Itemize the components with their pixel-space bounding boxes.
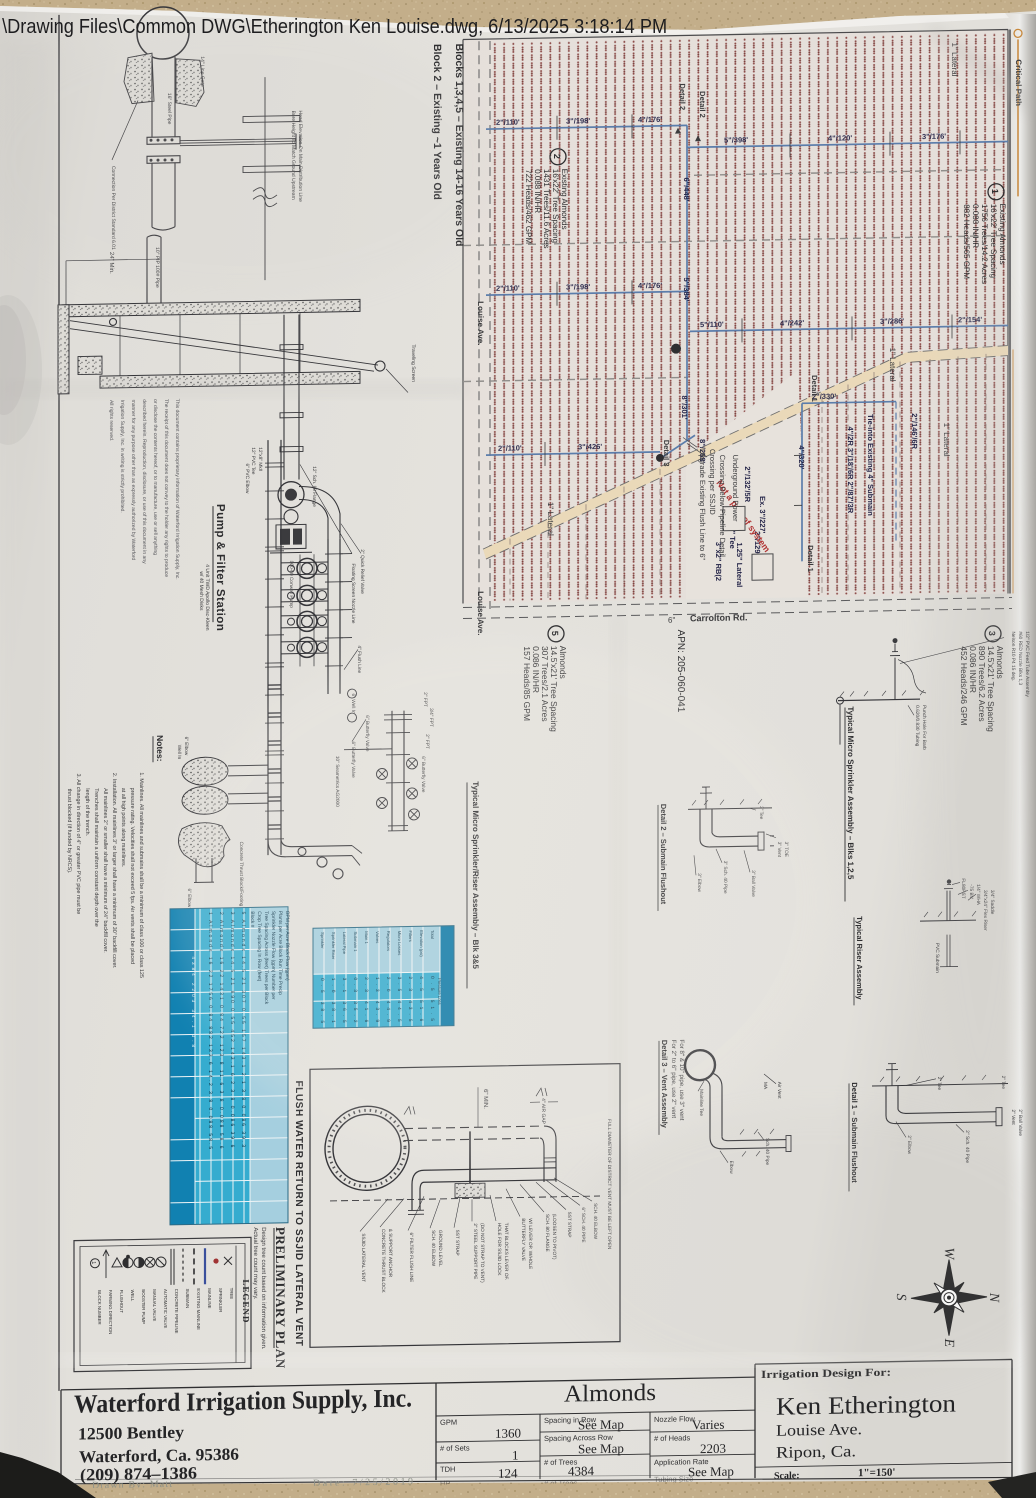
svg-text:FARMING DIRECTION: FARMING DIRECTION [108,1290,113,1334]
svg-text:See Map: See Map [578,1441,624,1457]
svg-text:0.088 IN/HR: 0.088 IN/HR [533,169,542,213]
svg-text:Blocks 1,3,4,5 – Existing 14: Blocks 1,3,4,5 – Existing 14-16 Years Ol… [453,43,465,246]
svg-text:4"/176': 4"/176' [638,281,662,290]
svg-text:WELL: WELL [130,1290,135,1302]
svg-text:12500 Bentley: 12500 Bentley [78,1423,185,1444]
svg-text:4"/2R 3"/18'/6R 2"/87'/3R: 4"/2R 3"/18'/6R 2"/87'/3R [846,426,855,514]
svg-text:Ken Etherington: Ken Etherington [776,1390,957,1420]
svg-text:3"/176': 3"/176' [922,132,946,141]
svg-text:2" FPT: 2" FPT [424,734,430,749]
svg-text:Detail 3 – Vent Assembly: Detail 3 – Vent Assembly [660,1040,669,1129]
svg-text:2" Ball Valve: 2" Ball Valve [1017,1109,1023,1136]
svg-text:S: S [893,1293,908,1300]
svg-text:1756 Trees/14.2 Acres: 1756 Trees/14.2 Acres [980,204,989,284]
svg-text:3.5 44.5: 3.5 44.5 [397,977,402,1026]
svg-text:3. All change in directio: 3. All change in direction of 4" or grea… [75,774,81,915]
svg-text:Waterford Irrigation Supply,: Waterford Irrigation Supply, Inc. [74,1383,412,1418]
svg-text:Air Vent: Air Vent [776,1082,782,1100]
svg-text:Elevation (psi): Elevation (psi) [419,930,424,957]
svg-text:APN: 205-060-041: APN: 205-060-041 [675,629,686,712]
svg-text:2"/110': 2"/110' [496,283,520,292]
svg-text:SCH. 40 ELBOW: SCH. 40 ELBOW [431,1230,436,1267]
svg-text:3" Tee: 3" Tee [758,806,764,820]
svg-text:Filters: Filters [408,930,413,941]
svg-text:3/4" FPT: 3/4" FPT [428,708,434,727]
svg-text:1360: 1360 [495,1425,521,1440]
svg-text:Submain 1: Submain 1 [353,931,358,952]
svg-text:FL80PST: FL80PST [960,878,966,898]
svg-text:Concrete Thrust Block/Footing: Concrete Thrust Block/Footing [238,842,244,907]
svg-text:2"/110': 2"/110' [496,117,520,126]
svg-text:1.25" Lateral: 1.25" Lateral [735,542,744,587]
svg-text:2"/132'/5R: 2"/132'/5R [743,466,752,503]
svg-text:Regulators: Regulators [386,931,391,951]
svg-text:pressure rating. Velocities: pressure rating. Velocities shall not ex… [129,788,135,965]
svg-text:2" Vent: 2" Vent [1010,1109,1016,1125]
svg-text:1" Lateral: 1" Lateral [888,348,897,382]
svg-text:For 8" & 10" pipe, use 3" vent: For 8" & 10" pipe, use 3" vent [678,1039,685,1120]
svg-text:& SUPPORT ANCHOR: & SUPPORT ANCHOR [388,1229,393,1278]
svg-text:Sprinkler Nozzle Flow (gpm): Sprinkler Nozzle Flow (gpm) Number per [270,911,276,1000]
svg-text:2: 2 [552,154,562,159]
svg-text:16'x22' Tree Spacing: 16'x22' Tree Spacing [989,204,998,278]
svg-text:6" FILTER FLUSH LINE: 6" FILTER FLUSH LINE [409,1232,414,1282]
svg-text:Elbow: Elbow [728,1161,734,1175]
svg-text:4"/320': 4"/320' [797,445,806,469]
svg-text:Louise Ave.: Louise Ave. [476,301,485,345]
svg-text:# of Heads: # of Heads [654,1433,691,1443]
svg-text:LEGEND: LEGEND [241,1279,251,1323]
svg-text:(DO NOT STRAP TO VENT): (DO NOT STRAP TO VENT) [480,1223,485,1283]
svg-text:AUTOMATIC VALVE: AUTOMATIC VALVE [163,1289,168,1329]
svg-text:Crossing per SSJID: Crossing per SSJID [708,449,717,516]
svg-text:16" Steel Pipe: 16" Steel Pipe [166,93,172,125]
svg-text:Ripon, Ca.: Ripon, Ca. [776,1443,856,1461]
svg-text:0.5 51.5: 0.5 51.5 [430,976,435,1025]
svg-text:Detail 2: Detail 2 [678,83,687,110]
svg-text:This document contains proprie: This document contains proprietary infor… [174,399,180,580]
svg-text:Head Elevation On Main Distrib: Head Elevation On Main Distribution Line [297,110,303,202]
svg-text:Detail 1: Detail 1 [806,545,815,572]
svg-text:Bore Height To Match Ground Up: Bore Height To Match Ground Upstream [290,111,296,200]
svg-text:1: 1 [512,1447,518,1462]
svg-text:Tree Spacing Across (feet): Tree Spacing Across (feet) Trees per Blo… [263,911,269,1005]
svg-text:Existing Almonds: Existing Almonds [560,169,569,230]
svg-text:1"=150': 1"=150' [858,1467,895,1480]
svg-text:1.0 38.1: 1.0 38.1 [331,978,336,1027]
svg-text:5 Almonds 14.5 21 307: 5 Almonds 14.5 21 307 0.55 157 143.1 2.1… [240,911,246,1149]
svg-text:5: 5 [550,631,560,636]
svg-text:6" Butterfly Valve: 6" Butterfly Valve [350,741,356,778]
svg-text:SST STRAP: SST STRAP [567,1212,572,1238]
svg-text:2" Sch. 40 Pipe: 2" Sch. 40 Pipe [964,1130,970,1163]
svg-text:Typical Micro Sprinkler/Riser: Typical Micro Sprinkler/Riser Assembly –… [471,781,480,969]
svg-text:12"x8" MkII: 12"x8" MkII [257,447,263,471]
svg-text:# of Sets: # of Sets [440,1443,470,1453]
svg-text:4384 2203 34: 4384 2203 34.1 3.8 [191,956,196,1050]
svg-text:or disclose the contents hereo: or disclose the contents hereof, or to m… [152,399,158,555]
svg-text:0.620/0.830 Tubing: 0.620/0.830 Tubing [914,705,920,747]
svg-text:1 Almonds 16 22 1756: 1 Almonds 16 22 1756 0.84 882 133.6 14.2… [207,912,213,1151]
svg-text:w/ 40 Mesh Disks: w/ 40 Mesh Disks [198,571,204,611]
svg-text:4384: 4384 [568,1463,594,1478]
svg-text:3"/198': 3"/198' [566,282,590,291]
svg-text:TREE: TREE [229,1288,234,1300]
svg-text:FLUSHOUT: FLUSHOUT [119,1290,124,1314]
svg-text:4.5 51.6: 4.5 51.6 [419,976,424,1025]
svg-text:3"/426': 3"/426' [578,442,602,451]
svg-text:Irrigation Supply, Inc. in wri: Irrigation Supply, Inc. in writing is st… [119,400,125,513]
svg-text:6"/448': 6"/448' [682,177,691,201]
svg-text:1: 1 [90,1261,96,1264]
svg-text:Punch Hole For Barb: Punch Hole For Barb [921,705,927,750]
svg-text:W/ LEVER OP. W/HOLE: W/ LEVER OP. W/HOLE [528,1218,533,1269]
svg-text:PRELIMINARY PLAN: PRELIMINARY PLAN [273,1227,288,1369]
svg-text:SST STRAP: SST STRAP [455,1230,460,1256]
svg-text:2"/154': 2"/154' [958,315,982,324]
svg-text:5"/384': 5"/384' [682,277,691,301]
svg-text:3/4" Saddle: 3/4" Saddle [989,890,995,915]
svg-text:16'x22' Tree Spacing: 16'x22' Tree Spacing [551,169,560,243]
svg-text:MAINLINE: MAINLINE [207,1288,212,1309]
svg-text:CONCRETE THRUST BLOCK: CONCRETE THRUST BLOCK [381,1229,386,1294]
svg-text:EXISTING MAINLINE: EXISTING MAINLINE [196,1288,201,1330]
svg-text:SCH. 40 ELBOW: SCH. 40 ELBOW [593,1203,598,1240]
svg-text:Typical Micro Sprinkler Assemb: Typical Micro Sprinkler Assembly – Blks … [846,706,855,880]
svg-text:Detail 1 – Submain Flushout: Detail 1 – Submain Flushout [850,1082,859,1183]
svg-text:Mainline Tee: Mainline Tee [698,1089,704,1116]
svg-text:Sprinkler Riser: Sprinkler Riser [331,932,336,960]
svg-text:Notes:: Notes: [155,735,165,762]
svg-text:3"/286': 3"/286' [880,316,904,325]
svg-text:GROUND LEVEL: GROUND LEVEL [438,1230,443,1267]
svg-text:4" AIR GAP: 4" AIR GAP [540,1098,546,1125]
svg-text:Micro Losses: Micro Losses [397,931,402,956]
svg-text:0.088 IN/HR: 0.088 IN/HR [971,204,980,248]
svg-text:Total: Total [430,930,435,939]
svg-text:All mainlines 2" or smalle: All mainlines 2" or smaller shall have a… [102,788,108,953]
svg-text:Design tree count based on inf: Design tree count based on information g… [260,1227,266,1350]
svg-text:Louise Ave.: Louise Ave. [776,1421,862,1440]
svg-text:BUTTERFLY VALVE: BUTTERFLY VALVE [521,1218,526,1261]
svg-text:The receipt of this document d: The receipt of this document does not co… [163,399,169,577]
svg-text:2" Tee: 2" Tee [936,1077,942,1091]
svg-text:3.1 36.5: 3.1 36.5 [342,978,347,1027]
svg-text:Lateral Pipe: Lateral Pipe [342,932,347,955]
svg-text:Well In: Well In [176,745,182,760]
svg-text:124: 124 [498,1466,518,1481]
svg-text:3" Vent: 3" Vent [776,842,782,858]
svg-text:6" MIN.: 6" MIN. [482,1089,488,1109]
svg-text:Block #: Block # [249,911,255,927]
svg-text:10" PIP 100# Pipe: 10" PIP 100# Pipe [154,247,160,288]
svg-text:1431 Trees/11.6 Acres: 1431 Trees/11.6 Acres [542,169,551,249]
svg-text:5"/398': 5"/398' [724,135,748,144]
svg-text:10" Seametrics AG2000: 10" Seametrics AG2000 [334,756,340,807]
svg-text:4"/176': 4"/176' [638,115,662,124]
svg-text:See Map: See Map [688,1464,734,1480]
svg-text:12" PVC Tee: 12" PVC Tee [250,447,256,475]
svg-text:3" Elbow: 3" Elbow [696,873,702,892]
svg-text:W: W [941,1247,956,1260]
svg-text:(LOOSEN TO PIVOT): (LOOSEN TO PIVOT) [552,1214,557,1260]
svg-text:Detail 2: Detail 2 [698,91,707,118]
svg-text:Connection Per District Standa: Connection Per District Standard 6.01 [110,166,116,250]
svg-text:3/4"x24" Flex Riser: 3/4"x24" Flex Riser [982,890,988,931]
svg-text:at all high points along: at all high points along mainlines. [120,788,126,868]
svg-text:1/4" WHA: 1/4" WHA [975,884,981,906]
svg-text:2" Elbow: 2" Elbow [906,1135,912,1154]
svg-text:length of the trench.: length of the trench. [84,788,90,836]
svg-text:GPM per Acre Block Flow (g: GPM per Acre Block Flow (gpm) [284,911,290,981]
svg-text:Varies: Varies [692,1417,724,1433]
svg-text:452 Heads/246 GPM: 452 Heads/246 GPM [959,646,969,726]
svg-text:6" SCH. 40 PIPE: 6" SCH. 40 PIPE [581,1207,586,1242]
svg-text:SCH. 80 FLANGE: SCH. 80 FLANGE [545,1214,550,1252]
svg-text:Pressure Loss: Pressure Loss [437,978,442,1005]
svg-text:N: N [986,1292,1001,1303]
svg-text:THAT BLOCKS LEVER OF.: THAT BLOCKS LEVER OF. [504,1223,509,1280]
svg-text:6" Well In: 6" Well In [350,693,356,714]
svg-text:722 Heads/462 GPM: 722 Heads/462 GPM [524,169,533,244]
svg-text:Trenches shall maintain a: Trenches shall maintain a uniform consta… [93,788,99,927]
svg-text:FLUSH WATER RETURN TO SSJI: FLUSH WATER RETURN TO SSJID LATERAL VENT [293,1080,304,1346]
svg-text:Plants per Acre Block Run Ti: Plants per Acre Block Run Time Precip [277,911,283,995]
svg-text:6" Elbow: 6" Elbow [183,737,189,756]
svg-text:2" Tee: 2" Tee [1000,1076,1006,1090]
svg-text:1" Lateral: 1" Lateral [942,423,951,457]
svg-text:Louise Ave.: Louise Ave. [476,591,485,635]
svg-text:2" FPT: 2" FPT [422,692,428,707]
svg-text:3" TOE: 3" TOE [783,842,789,858]
svg-text:8"/301': 8"/301' [680,395,689,419]
svg-text:SUBMAIN: SUBMAIN [185,1289,190,1309]
svg-text:Nozzle Flow: Nozzle Flow [654,1414,695,1424]
svg-text:Actual tree count may vary.: Actual tree count may vary. [252,1227,258,1300]
svg-text:-75 BV: -75 BV [968,884,974,900]
svg-text:0.5 38.5: 0.5 38.5 [320,978,325,1027]
svg-text:2. Installation. All main: 2. Installation. All mainlines 3" or lar… [111,773,117,969]
svg-text:882 Heads/565 GPM: 882 Heads/565 GPM [962,204,971,279]
svg-text:2203: 2203 [700,1441,726,1456]
svg-text:Typical Riser Assembly: Typical Riser Assembly [855,916,864,1000]
svg-text:Irrigation Design For:: Irrigation Design For: [761,1367,891,1381]
svg-text:1. Mainlines. All mainlin: 1. Mainlines. All mainlines and submains… [138,772,144,978]
svg-text:BOOSTER PUMP: BOOSTER PUMP [141,1289,146,1324]
svg-text:2 Almonds 16 22 1431: 2 Almonds 16 22 1431 0.84 722 123.8 11.6… [218,912,224,1151]
svg-text:\Drawing Files\Common DWG\Ethe: \Drawing Files\Common DWG\Etherington Ke… [2,16,667,38]
svg-text:6": 6" [668,616,675,625]
svg-text:All rights reserved.: All rights reserved. [108,400,114,442]
svg-text:Ex. 3"/227': Ex. 3"/227' [758,496,767,534]
svg-text:Crop Tree Spacing In Row: Crop Tree Spacing In Row (feet) [256,911,262,982]
svg-text:HOLE FOR SSJID LOCK: HOLE FOR SSJID LOCK [497,1223,502,1277]
svg-text:Valves: Valves [375,931,380,943]
svg-text:Detail 2 – Submain Flushout: Detail 2 – Submain Flushout [659,804,668,905]
svg-text:2" STEEL SUPPORT PIPE: 2" STEEL SUPPORT PIPE [473,1223,478,1279]
svg-text:1: 1 [990,189,1000,194]
svg-text:24" Min.: 24" Min. [108,252,114,274]
svg-text:Crossing Below Pipeline Detail: Crossing Below Pipeline Detail [718,455,727,558]
svg-text:MA: MA [762,1082,768,1090]
svg-text:Traveling Screen: Traveling Screen [410,344,416,382]
svg-text:Main 1: Main 1 [364,931,369,944]
svg-text:Floating Screen Nozzle Line: Floating Screen Nozzle Line [350,563,356,623]
svg-text:12" Sch. 80 Flange: 12" Sch. 80 Flange [311,466,317,507]
svg-text:Carrolton Rd.: Carrolton Rd. [690,612,747,623]
svg-text:Tie-into Existing 4" Submain: Tie-into Existing 4" Submain [866,414,875,516]
svg-text:Nelson R10 P4 15 deg.: Nelson R10 P4 15 deg. [1010,631,1016,681]
svg-text:SPRINKLER: SPRINKLER [218,1288,223,1312]
svg-text:6" Elbow: 6" Elbow [186,888,192,907]
svg-text:2"/110': 2"/110' [498,443,522,452]
svg-text:GPM: GPM [440,1418,457,1427]
svg-text:6" PVC Elbow: 6" PVC Elbow [244,463,250,494]
svg-text:described herein. Reproductio: described herein. Reproduction, disclosu… [141,399,147,564]
svg-text:2.3 41.6: 2.3 41.6 [364,977,369,1026]
svg-text:4"/120': 4"/120' [828,133,852,142]
svg-text:4"/242': 4"/242' [780,318,804,327]
svg-text:1" Lateral: 1" Lateral [546,502,555,536]
svg-text:2"/146'/6R: 2"/146'/6R [910,413,919,450]
svg-text:500-60 Conwell Pump: 500-60 Conwell Pump [288,561,294,609]
svg-text:3 Almonds 14.5 21 890: 3 Almonds 14.5 21 890 0.55 452 143.1 6.2… [229,912,235,1150]
svg-text:3: 3 [987,631,997,636]
svg-text:#60 RED Nozzle Blks 1,3: #60 RED Nozzle Blks 1,3 [1017,631,1023,685]
svg-text:TDH: TDH [440,1465,455,1474]
svg-text:Sprinkler: Sprinkler [320,932,325,949]
svg-text:2.3 43.5: 2.3 43.5 [408,976,413,1025]
svg-text:3" Sch. 40 Pipe: 3" Sch. 40 Pipe [722,861,728,894]
svg-text:Sch. 40 Pipe: Sch. 40 Pipe [764,1138,770,1166]
svg-text:Scale:: Scale: [774,1470,800,1481]
svg-text:3" Ball Valve: 3" Ball Valve [750,870,756,897]
svg-text:Block 2 – Existing ~1 Years: Block 2 – Existing ~1 Years Old [431,44,443,200]
svg-text:1/2" PVC Feed Tube Assembly: 1/2" PVC Feed Tube Assembly [1024,631,1030,697]
svg-text:Critical Path: Critical Path [1014,59,1023,106]
svg-text:E: E [941,1337,956,1347]
svg-text:0.3 35.2: 0.3 35.2 [353,977,358,1026]
svg-text:1" Lateral: 1" Lateral [950,42,959,76]
svg-text:6" Butterfly Valve: 6" Butterfly Valve [420,756,426,793]
svg-text:MANUAL VALVE: MANUAL VALVE [152,1289,157,1321]
svg-text:Upgrade Existing Flush Line to: Upgrade Existing Flush Line to 6" [698,449,707,561]
svg-text:Underground Power: Underground Power [731,454,740,522]
svg-text:PVC Submain: PVC Submain [934,943,940,974]
svg-text:3"/198': 3"/198' [566,116,590,125]
svg-text:BLOCK NUMBER: BLOCK NUMBER [97,1290,102,1324]
svg-text:FULL DIAMETER OF DISTRICT VENT: FULL DIAMETER OF DISTRICT VENT MUST BE L… [607,1119,612,1250]
svg-text:SSJID LATERAL VENT: SSJID LATERAL VENT [361,1233,366,1282]
svg-text:Detail 1: Detail 1 [810,375,819,402]
svg-text:See Map: See Map [578,1417,624,1433]
svg-text:157 Heads/85 GPM: 157 Heads/85 GPM [522,646,532,721]
svg-text:For 2" to 6" pipe, use 2" vent: For 2" to 6" pipe, use 2" vent [670,1040,677,1119]
svg-text:CONCRETE PIPELINE: CONCRETE PIPELINE [174,1289,179,1334]
svg-text:Existing Almonds: Existing Almonds [998,204,1007,265]
svg-text:Almonds: Almonds [564,1380,656,1408]
svg-text:5"/110': 5"/110' [700,320,724,329]
svg-text:4" Flush Line: 4" Flush Line [356,645,362,673]
svg-text:1.3 43.9: 1.3 43.9 [375,977,380,1026]
svg-text:manner for any purpose other t: manner for any purpose other than as exp… [130,400,136,561]
svg-text:2.0 44.9: 2.0 44.9 [386,977,391,1026]
svg-text:14" Line Gate: 14" Line Gate [199,56,205,87]
svg-text:2" Quick Relief Valve: 2" Quick Relief Valve [359,549,365,594]
svg-text:Detail 3: Detail 3 [662,440,671,467]
svg-text:Pump & Filter Station: Pump & Filter Station [214,504,226,632]
svg-text:thrust blocked (if funded: thrust blocked (if funded by NRCS). [66,789,72,874]
